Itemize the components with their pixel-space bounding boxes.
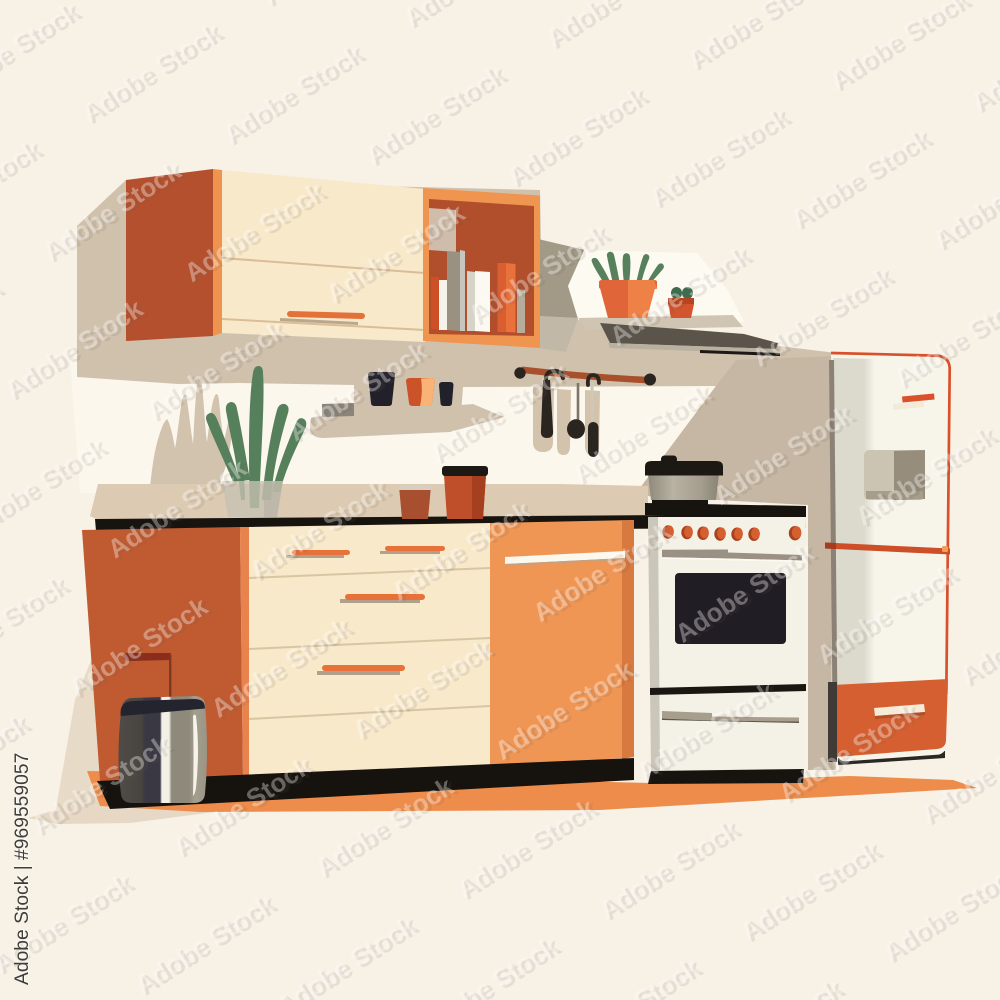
svg-text:Adobe Stock | #969559057: Adobe Stock | #969559057 xyxy=(12,753,33,985)
